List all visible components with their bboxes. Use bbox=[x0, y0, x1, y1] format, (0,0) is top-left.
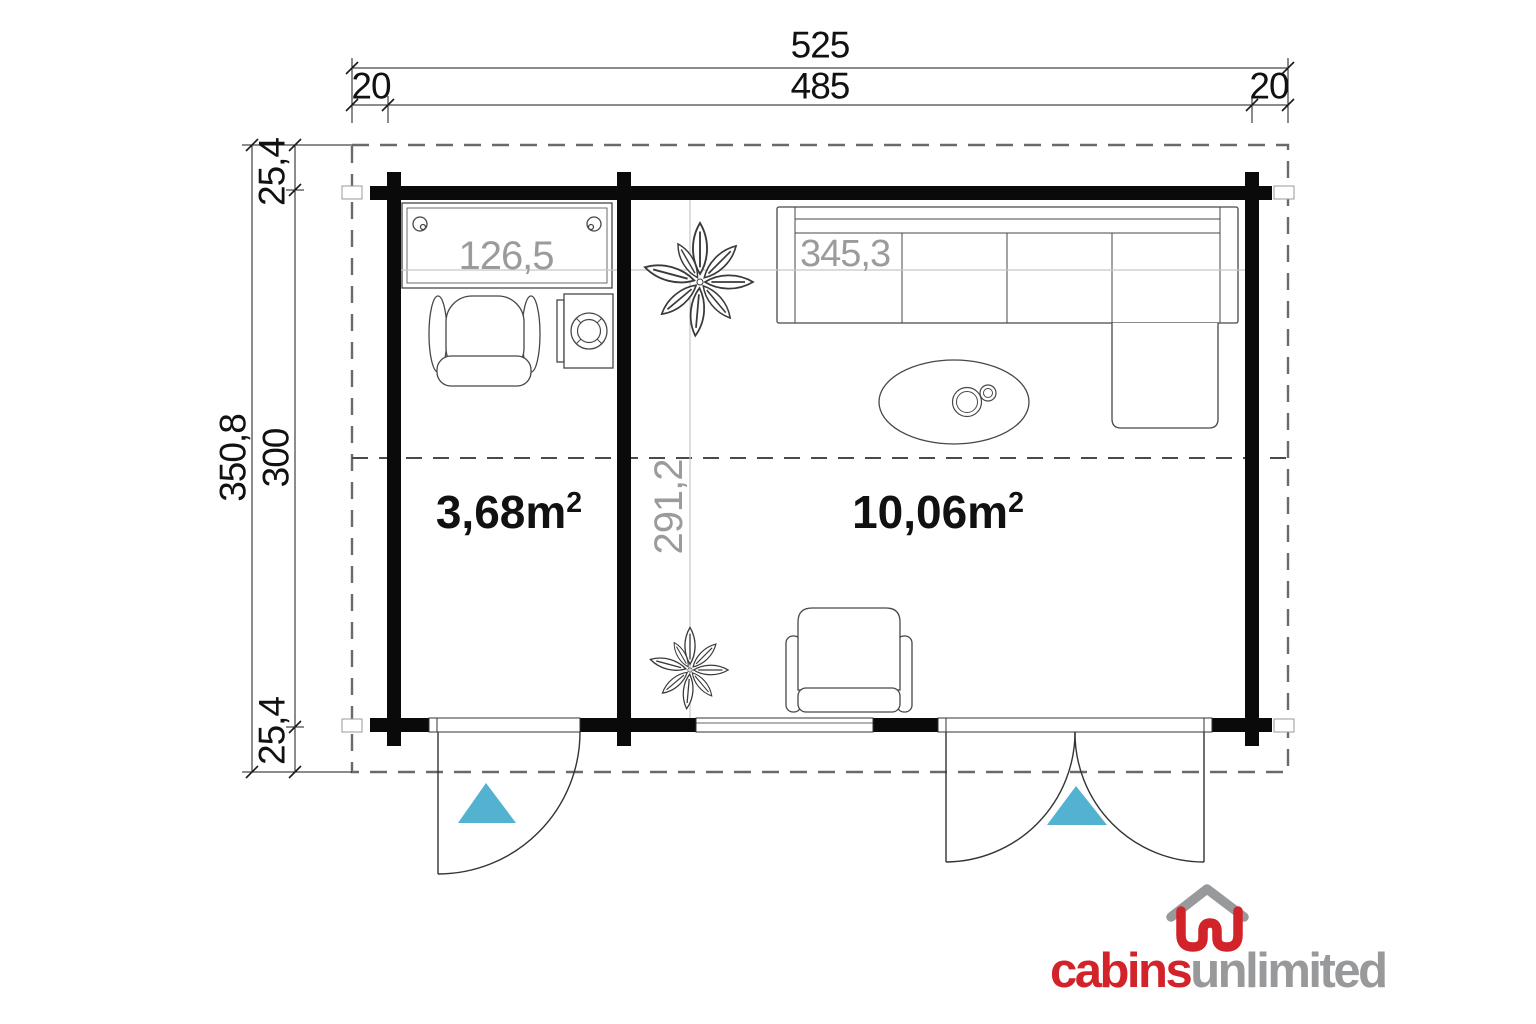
large-room-area-label: 10,06m2 bbox=[852, 489, 1024, 535]
dim-total-depth: 350,8 bbox=[215, 414, 252, 502]
sofa-width-label: 345,3 bbox=[800, 235, 890, 273]
cabins-unlimited-logo-icon bbox=[1171, 889, 1244, 947]
armchair bbox=[786, 608, 912, 712]
dim-right-overhang: 20 bbox=[1249, 68, 1288, 105]
window bbox=[696, 718, 873, 732]
area-value: 10,06m bbox=[852, 486, 1008, 538]
brand-unlimited: unlimited bbox=[1190, 944, 1385, 998]
area-sup: 2 bbox=[566, 487, 582, 519]
brand-cabins: cabins bbox=[1050, 944, 1190, 998]
desk-width-label: 126,5 bbox=[458, 236, 553, 276]
area-value: 3,68m bbox=[436, 486, 566, 538]
area-sup: 2 bbox=[1008, 487, 1024, 519]
dim-bottom-overhang: 25,4 bbox=[254, 697, 291, 765]
dim-inner-width: 485 bbox=[791, 68, 850, 105]
small-room-area-label: 3,68m2 bbox=[436, 489, 582, 535]
door-direction-arrow bbox=[458, 783, 516, 823]
floor-plan-drawing bbox=[0, 0, 1536, 1024]
office-chair bbox=[429, 296, 540, 386]
plant-icon bbox=[649, 628, 728, 710]
purlin-notch bbox=[342, 186, 362, 199]
logo-house-body bbox=[1181, 911, 1238, 947]
purlin-notch bbox=[1274, 186, 1294, 199]
plant-icon bbox=[643, 223, 753, 336]
single-door bbox=[429, 718, 580, 874]
dim-inner-depth: 300 bbox=[258, 429, 295, 488]
dim-left-overhang: 20 bbox=[351, 68, 390, 105]
washing-machine bbox=[557, 294, 613, 368]
coffee-table bbox=[879, 360, 1029, 444]
purlin-notch bbox=[1274, 719, 1294, 732]
purlin-notch bbox=[342, 719, 362, 732]
dim-top-overhang: 25,4 bbox=[254, 138, 291, 206]
dim-total-width: 525 bbox=[791, 27, 850, 64]
room-depth-label: 291,2 bbox=[649, 459, 689, 554]
double-door bbox=[938, 718, 1212, 862]
cabins-unlimited-wordmark: cabinsunlimited bbox=[1050, 947, 1386, 996]
